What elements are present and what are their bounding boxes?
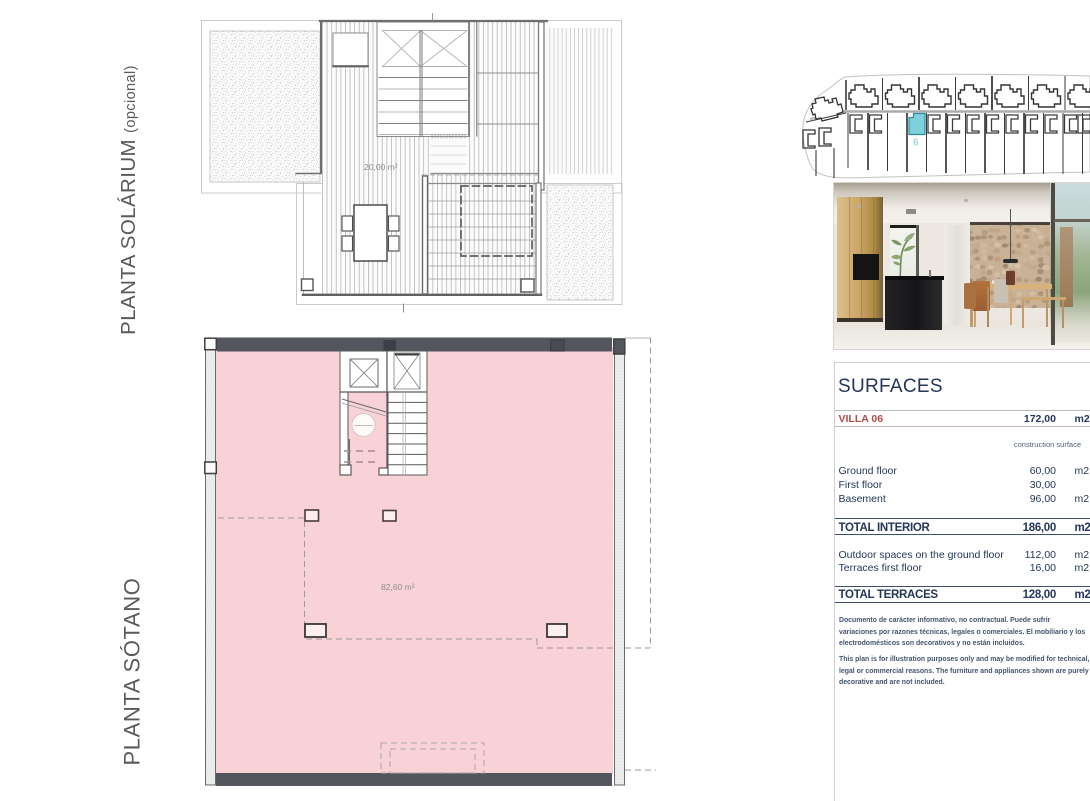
svg-text:6: 6 [913, 138, 919, 149]
svg-text:20,00 m²: 20,00 m² [364, 162, 398, 172]
svg-text:82,60 m²: 82,60 m² [381, 582, 415, 592]
